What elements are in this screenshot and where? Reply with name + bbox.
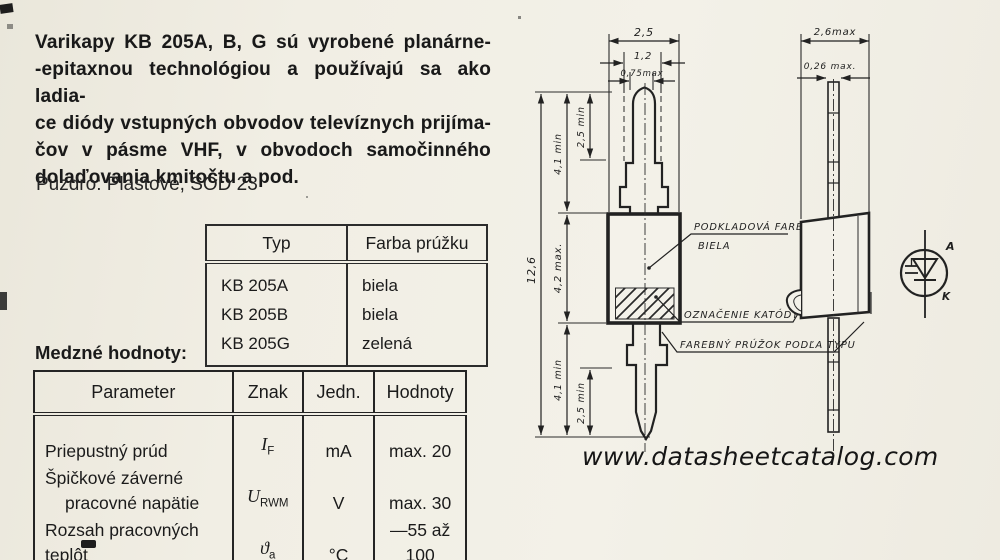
- unit-cell: °C: [303, 517, 374, 560]
- scan-artifact: [7, 24, 13, 29]
- package-drawing: 2,5 1,2 0,75max 12,6 4,1 min 2,5 min 4,2…: [520, 0, 1000, 560]
- parameter-line: pracovné napätie: [45, 491, 231, 516]
- dim-lead-width: 0,75max: [620, 69, 663, 79]
- symbol-cell: ϑa: [233, 517, 303, 560]
- type-table-header-farba: Farba prúžku: [347, 225, 487, 262]
- dim-overall-length: 12,6: [525, 256, 538, 284]
- table-row: Špičkové záverné pracovné napätie URWM V…: [34, 465, 466, 517]
- type-table-header-typ: Typ: [206, 225, 347, 262]
- varicap-symbol: A K: [901, 230, 955, 318]
- dim-body-length: 4,2 max.: [553, 243, 564, 293]
- dim-lead-length-bottom: 4,1 min: [553, 359, 564, 401]
- intro-line: čov v pásme VHF, v obvodoch samočinného: [35, 137, 491, 164]
- intro-paragraph: Varikapy KB 205A, B, G sú vyrobené planá…: [35, 29, 491, 191]
- dim-lead-thickness: 0,26 max.: [804, 62, 857, 72]
- limits-table-header-row: Parameter Znak Jedn. Hodnoty: [34, 371, 466, 414]
- type-table-header-row: Typ Farba prúžku: [206, 225, 487, 262]
- limits-header-jedn: Jedn.: [303, 371, 374, 414]
- dim-lead-tip-bottom: 2,5 min: [576, 382, 587, 424]
- leader-dot: [647, 266, 651, 270]
- symbol-subscript: F: [267, 445, 274, 457]
- cathode-label: K: [942, 291, 951, 303]
- symbol-subscript: a: [269, 549, 275, 560]
- dim-inner-width: 1,2: [634, 51, 652, 62]
- table-row: KB 205A biela: [206, 262, 487, 301]
- callout-base-color-2: BIELA: [698, 241, 730, 252]
- value-cell: max. 20: [374, 414, 466, 465]
- symbol-letter: U: [247, 486, 260, 506]
- scan-artifact: [0, 3, 14, 14]
- limits-heading: Medzné hodnoty:: [35, 342, 187, 364]
- value-cell: max. 30: [374, 465, 466, 517]
- package-body-side: [801, 213, 869, 318]
- type-cell: KB 205B: [206, 301, 347, 330]
- front-view-drawing: 2,5 1,2 0,75max 12,6 4,1 min 2,5 min 4,2…: [525, 26, 685, 452]
- anode-label: A: [945, 240, 955, 253]
- datasheet-page: Varikapy KB 205A, B, G sú vyrobené planá…: [0, 0, 1000, 560]
- symbol-cell: URWM: [233, 465, 303, 517]
- dim-width: 2,5: [634, 26, 654, 39]
- limits-table: Parameter Znak Jedn. Hodnoty Priepustný …: [33, 370, 467, 560]
- bottom-lead-outline: [627, 323, 667, 439]
- symbol-cell: IF: [233, 414, 303, 465]
- leader-dot: [654, 295, 658, 299]
- table-row: Rozsah pracovných teplôt ϑa °C —55 až 10…: [34, 517, 466, 560]
- callout-base-color: PODKLADOVÁ FARBA: [694, 220, 811, 233]
- limits-header-parameter: Parameter: [34, 371, 233, 414]
- unit-cell: V: [303, 465, 374, 517]
- capacitor-plates: [905, 258, 918, 273]
- color-cell: biela: [347, 301, 487, 330]
- side-view-drawing: 2,6max 0,26 max.: [787, 27, 871, 455]
- dim-lead-tip-top: 2,5 min: [576, 106, 587, 148]
- type-cell: KB 205A: [206, 262, 347, 301]
- limits-header-znak: Znak: [233, 371, 303, 414]
- intro-line: Varikapy KB 205A, B, G sú vyrobené planá…: [35, 29, 491, 56]
- dim-side-width: 2,6max: [814, 27, 857, 38]
- parameter-line: Špičkové záverné: [45, 466, 231, 491]
- dim-lead-length-top: 4,1 min: [553, 133, 564, 175]
- type-table: Typ Farba prúžku KB 205A biela KB 205B b…: [205, 224, 488, 367]
- limits-header-hodnoty: Hodnoty: [374, 371, 466, 414]
- parameter-cell: Priepustný prúd: [34, 414, 233, 465]
- table-row: KB 205G zelená: [206, 330, 487, 366]
- scan-artifact: [0, 292, 7, 310]
- parameter-cell: Rozsah pracovných teplôt: [34, 517, 233, 560]
- intro-line: -epitaxnou technológiou a používajú sa a…: [35, 56, 491, 110]
- table-row: KB 205B biela: [206, 301, 487, 330]
- symbol-subscript: RWM: [260, 497, 289, 509]
- scan-artifact: [306, 196, 308, 198]
- type-cell: KB 205G: [206, 330, 347, 366]
- parameter-cell: Špičkové záverné pracovné napätie: [34, 465, 233, 517]
- unit-cell: mA: [303, 414, 374, 465]
- value-cell: —55 až 100: [374, 517, 466, 560]
- intro-line: ce diódy vstupných obvodov televíznych p…: [35, 110, 491, 137]
- package-note: Puzdro: Plastové, SOD 23: [36, 174, 258, 196]
- dimension-lines: [797, 41, 870, 78]
- callout-color-stripe: FAREBNÝ PRÚŽOK PODĽA TYPU: [680, 338, 856, 351]
- symbol-letter: ϑ: [260, 538, 269, 558]
- table-row: Priepustný prúd IF mA max. 20: [34, 414, 466, 465]
- callout-cathode-mark: OZNAČENIE KATÓDY: [684, 308, 799, 321]
- color-cell: biela: [347, 262, 487, 301]
- color-cell: zelená: [347, 330, 487, 366]
